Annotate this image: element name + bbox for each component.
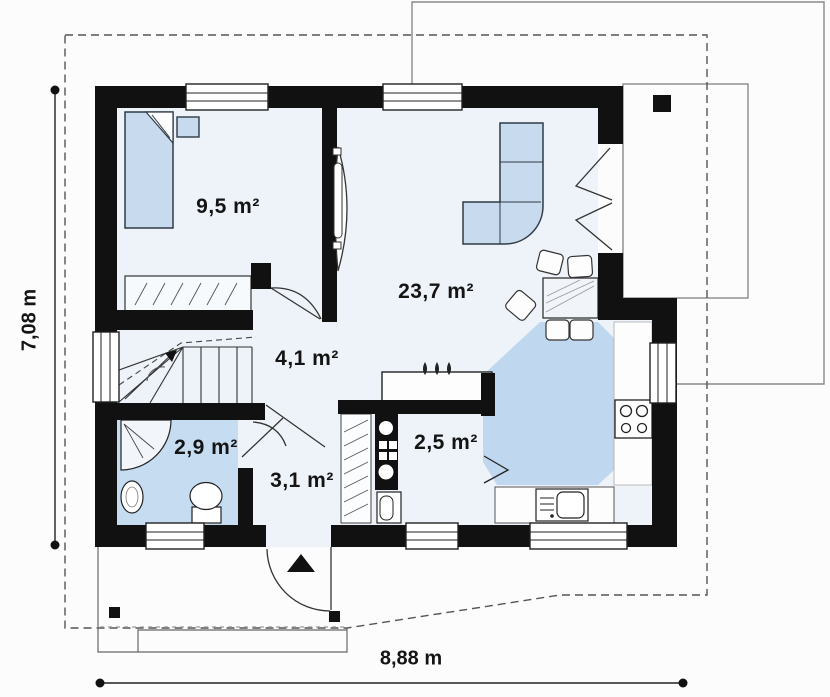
chair [570,320,593,340]
nightstand [177,117,199,137]
appliance-button [379,452,387,460]
dim-end-dot [51,86,60,95]
porch-column-right [329,611,340,622]
bedroom-wardrobe [125,276,251,312]
floor-plan: 9,5 m² 23,7 m² 4,1 m² 2,9 m² 3,1 m² 2,5 … [0,0,830,697]
fireplace [382,372,492,402]
room-label-hall: 4,1 m² [275,347,339,371]
window-living [383,84,462,110]
appliance-button [389,452,397,460]
appliance-button [389,441,397,449]
window-kitchen-east [650,343,676,403]
room-label-utility: 2,5 m² [414,431,478,455]
wall-bathroom-right [238,468,253,525]
toilet-bowl [190,483,222,510]
height-dimension-label: 7,08 m [19,289,42,351]
washbasin [121,481,143,513]
window-kitchen-south [530,523,627,549]
wall-top [95,86,623,108]
wall-right-living [598,253,623,302]
terrace-outline [623,84,748,298]
corridor-wardrobe [341,414,371,523]
dining-table [543,278,598,318]
door-hinge [333,242,341,249]
terrace-column [653,95,671,112]
chair [546,320,569,340]
window-utility [406,523,458,549]
sink-basin [557,492,584,518]
sink-faucet [550,514,554,518]
appliance-button [379,441,387,449]
dim-end-dot [96,679,105,688]
window-bedroom [186,84,268,110]
door-hinge [333,148,341,155]
window-stairs [93,332,119,402]
bedroom-living-door-leaf [334,163,342,238]
wall-hall-kitchen [338,400,495,414]
dim-end-dot [679,679,688,688]
wall-right-jog [598,298,677,320]
entrance-arrow-icon [287,554,315,572]
porch-slab [98,547,347,652]
room-label-living: 23,7 m² [398,280,474,304]
wall-utility-stub [481,373,495,416]
room-label-bathroom: 2,9 m² [174,436,238,460]
wall-bedroom-bottom [95,310,253,330]
appliance-dial [379,421,393,435]
room-label-bedroom: 9,5 m² [196,195,260,219]
room-label-corridor: 3,1 m² [270,469,334,493]
wall-door-pier [251,263,271,289]
wall-bathroom-top [95,403,265,420]
chair [567,255,592,278]
porch-step [138,630,347,652]
entrance-porch [98,547,347,652]
window-bathroom [146,523,204,549]
width-dimension-label: 8,88 m [380,648,442,671]
wall-pillar-topright [598,108,623,144]
utility-fixtures [341,414,401,523]
boiler-inner [380,496,393,520]
dim-end-dot [51,541,60,550]
stove [615,400,652,438]
porch-column-left [109,607,120,618]
floor-plan-canvas [0,0,830,697]
entrance-opening [266,525,331,547]
appliance-dial [379,465,394,480]
